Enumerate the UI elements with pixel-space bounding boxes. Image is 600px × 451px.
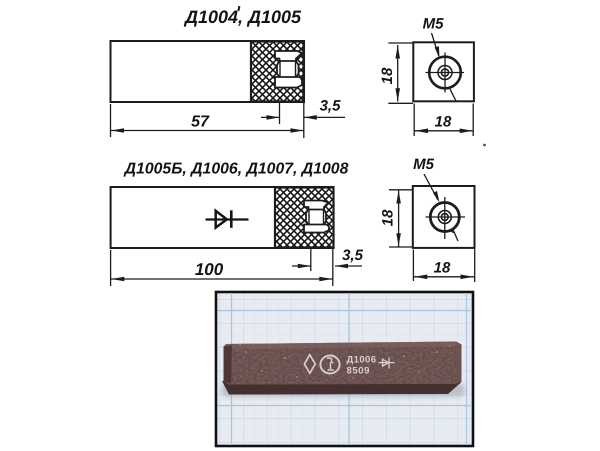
- svg-text:Д1005Б, Д1006, Д1007, Д1008: Д1005Б, Д1006, Д1007, Д1008: [123, 161, 349, 178]
- svg-text:М5: М5: [423, 16, 444, 33]
- svg-text:3,5: 3,5: [342, 247, 364, 264]
- svg-text:100: 100: [195, 260, 224, 279]
- svg-text:18: 18: [379, 67, 396, 84]
- svg-text:8509: 8509: [347, 366, 371, 377]
- svg-text:3,5: 3,5: [320, 98, 342, 115]
- svg-text:18: 18: [434, 260, 451, 277]
- svg-text:18: 18: [435, 114, 452, 131]
- svg-text:57: 57: [191, 114, 210, 131]
- svg-text:М5: М5: [413, 156, 434, 173]
- svg-text:Д1006: Д1006: [347, 355, 377, 366]
- svg-text:18: 18: [380, 209, 397, 226]
- svg-text:Д1004, Д1005: Д1004, Д1005: [183, 7, 302, 27]
